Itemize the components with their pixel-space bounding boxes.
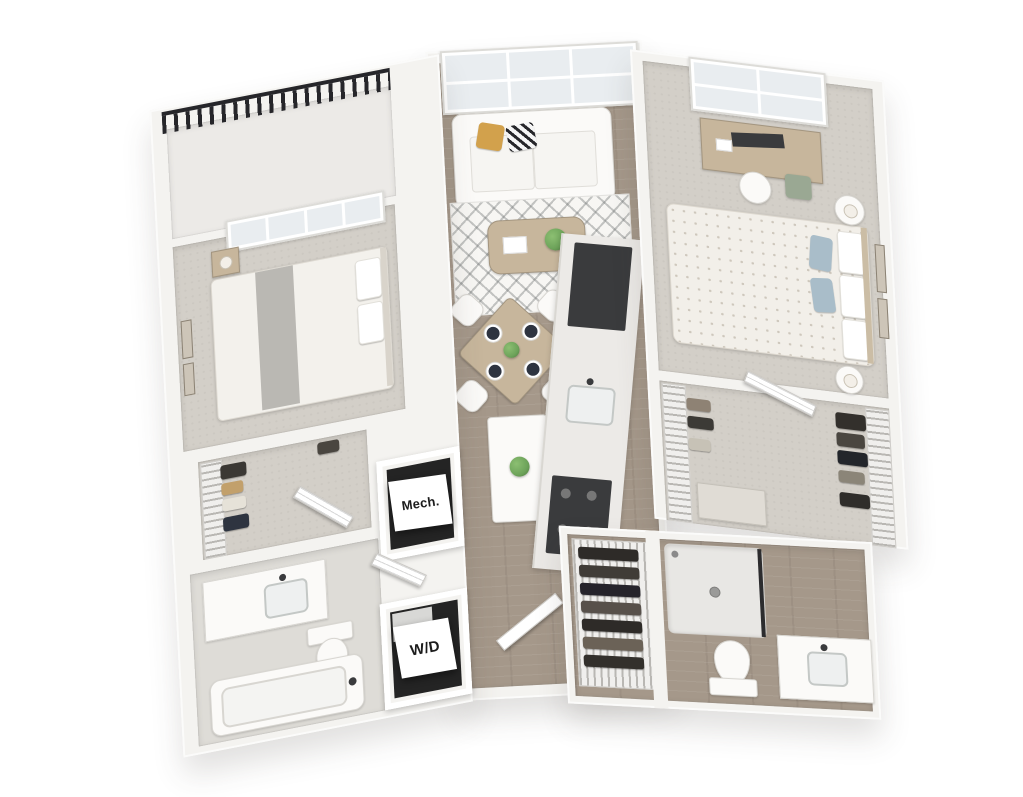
wall-art: [181, 319, 194, 359]
mech-label: Mech.: [388, 474, 452, 532]
burner: [560, 488, 571, 499]
window-pane: [574, 75, 636, 104]
window-pane: [695, 86, 758, 114]
window-pane: [510, 78, 572, 107]
window-pane: [760, 94, 823, 122]
toilet-2-tank: [709, 677, 758, 698]
apartment-plan: Mech. W/D: [0, 0, 1023, 797]
wall-art: [183, 362, 196, 396]
book: [503, 236, 528, 254]
window-pane: [231, 218, 267, 247]
bathroom-2-sink: [807, 651, 849, 687]
window-pane: [447, 81, 509, 110]
bed-2-blue-pillow: [810, 278, 837, 313]
nightstand-1: [211, 247, 240, 278]
kitchen-faucet: [586, 378, 594, 386]
island-plant: [509, 456, 530, 477]
lamp: [843, 373, 858, 389]
sofa-seat-cushion: [532, 130, 598, 189]
storage-bin: [785, 173, 812, 200]
monitor: [731, 132, 785, 148]
patterned-pillow: [505, 122, 537, 153]
sofa: [451, 106, 616, 208]
shower: [664, 543, 767, 638]
window-pane: [268, 211, 304, 240]
window-pane: [306, 203, 342, 232]
bed-1-pillow: [355, 256, 383, 301]
living-room-window: [440, 41, 641, 115]
wall-art: [874, 244, 887, 293]
bathroom-2-faucet: [820, 644, 827, 651]
bed-2-blue-pillow: [809, 234, 833, 272]
right-wing: [630, 49, 909, 550]
window-pane: [509, 49, 571, 78]
bed-1-pillow: [357, 300, 385, 345]
bathroom-2-wing: [559, 526, 882, 720]
floorplan-scene: Mech. W/D: [0, 0, 1023, 797]
left-wing: Mech. W/D: [149, 54, 472, 757]
bed-2: [666, 203, 875, 368]
kitchen-sink: [565, 384, 616, 426]
bathroom-1-sink: [263, 577, 308, 619]
burner: [586, 490, 597, 501]
dining-chair: [452, 376, 492, 416]
refrigerator: [567, 242, 632, 331]
bathtub-faucet: [348, 677, 356, 687]
bathroom-2-vanity: [777, 635, 875, 704]
washer-dryer-label: W/D: [393, 618, 457, 679]
lamp: [843, 203, 858, 219]
accent-pillow: [475, 122, 505, 152]
window-pane: [445, 53, 507, 82]
window-pane: [344, 196, 380, 225]
wall-art: [877, 298, 889, 339]
dining-chair: [448, 290, 488, 330]
bed-1-throw-blanket: [255, 265, 300, 410]
notebook: [716, 138, 733, 152]
shower-drain: [709, 586, 721, 598]
shower-head: [671, 550, 678, 557]
window-pane: [572, 46, 634, 75]
lamp: [219, 255, 233, 270]
